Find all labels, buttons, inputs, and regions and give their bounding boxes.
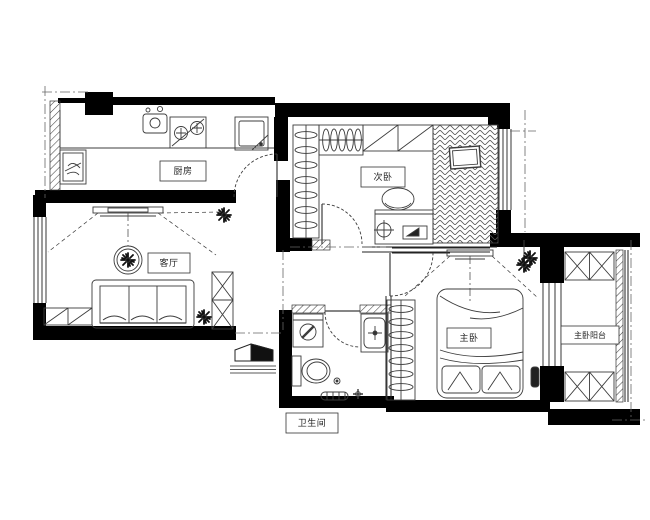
secondary-bedroom-door [322,204,362,244]
washing-machine-icon [293,314,323,347]
floor-plan-canvas: 厨房 [0,0,650,520]
stove-icon [170,117,206,148]
secondary-bedroom-window [499,129,511,210]
bathroom-sink-icon [361,314,388,352]
plant-icon [217,208,231,222]
chair-icon [382,188,414,210]
kitchen-door [234,154,277,197]
cabinet-icon [60,150,86,184]
living-room-label-text: 客厅 [159,257,178,269]
master-bedroom-label-text: 主卧 [459,332,478,344]
herringbone-bed-icon [433,125,498,243]
entrance-door-icon [230,344,276,373]
living-room-label: 客厅 [148,253,190,273]
monitor-icon [403,226,427,239]
round-table-icon [114,246,142,274]
kitchen [60,106,277,197]
secondary-bedroom-label: 次卧 [361,167,405,187]
closet-icon [363,125,433,151]
kitchen-label: 厨房 [160,161,206,181]
bathroom-label: 卫生间 [286,413,338,433]
bathroom-label-text: 卫生间 [298,417,327,429]
bathroom [292,311,388,400]
kitchen-label-text: 厨房 [173,165,192,177]
x-storage-cabinet-icon [212,272,233,329]
kitchen-sink-icon [143,106,167,133]
sofa-icon [92,280,194,328]
master-balcony-label-text: 主卧阳台 [574,330,606,340]
balcony-cabinet-icon [565,252,614,280]
toilet-icon [292,356,330,386]
shoe-cabinet-icon [44,308,92,325]
secondary-bedroom-label-text: 次卧 [373,171,392,183]
living-room-window [34,217,46,303]
balcony-cabinet-icon [565,372,614,401]
wardrobe-hangers-icon [293,125,319,238]
tv-viewing-lines [48,212,220,255]
master-bedroom-label: 主卧 [447,328,491,348]
wall-roller-icon [531,367,539,387]
compass-icon [374,220,394,240]
floor-plan: 厨房 [0,0,650,520]
master-balcony-label: 主卧阳台 [561,326,619,344]
top-hanger-rail [319,125,363,155]
master-bedroom-door [390,253,433,296]
balcony-window [543,283,561,366]
master-bedroom [387,240,539,400]
floor-drain-icon [334,378,340,384]
living-room [44,207,233,329]
bathroom-door [325,311,360,347]
plant-icon [197,310,211,324]
fridge-icon [235,117,268,150]
